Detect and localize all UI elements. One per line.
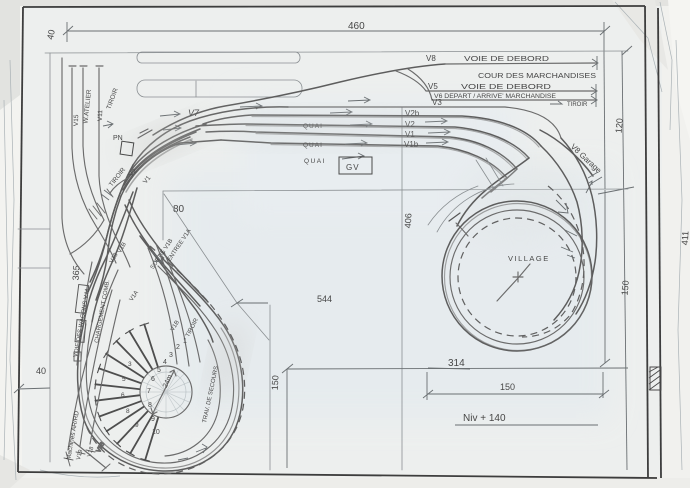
svg-text:150: 150: [500, 382, 515, 392]
svg-text:V6 DEPART / ARRIVE’ MARCHANDIS: V6 DEPART / ARRIVE’ MARCHANDISE: [434, 93, 556, 100]
svg-text:9: 9: [151, 416, 155, 423]
svg-text:GV: GV: [346, 163, 360, 172]
svg-text:VOIE DE DEBORD: VOIE DE DEBORD: [461, 82, 552, 91]
svg-text:2: 2: [176, 344, 180, 351]
svg-text:3: 3: [169, 352, 173, 359]
svg-text:1: 1: [183, 338, 187, 345]
svg-text:5: 5: [122, 376, 126, 383]
svg-text:120: 120: [614, 118, 625, 134]
svg-text:411: 411: [680, 231, 690, 246]
svg-text:V8: V8: [426, 54, 436, 63]
svg-text:8: 8: [126, 408, 130, 415]
svg-text:V11: V11: [97, 110, 104, 122]
svg-text:VOIE DE DEBORD: VOIE DE DEBORD: [464, 54, 550, 63]
svg-text:COUR DES MARCHANDISES: COUR DES MARCHANDISES: [478, 71, 596, 80]
svg-text:314: 314: [448, 358, 465, 369]
svg-text:PN: PN: [113, 135, 123, 142]
svg-text:7: 7: [147, 388, 151, 395]
svg-text:V7: V7: [188, 108, 200, 118]
svg-text:QUAI: QUAI: [304, 158, 326, 165]
svg-text:10: 10: [152, 429, 160, 436]
svg-text:Niv + 140: Niv + 140: [463, 413, 506, 424]
svg-text:V5: V5: [428, 82, 438, 91]
svg-text:V15: V15: [73, 114, 80, 126]
svg-text:3: 3: [128, 361, 132, 368]
svg-text:5: 5: [157, 367, 161, 374]
svg-text:V3: V3: [432, 98, 442, 107]
svg-text:365: 365: [71, 265, 82, 281]
svg-text:40: 40: [45, 29, 57, 41]
svg-text:8: 8: [148, 402, 152, 409]
svg-text:6: 6: [121, 392, 125, 399]
svg-text:40: 40: [36, 366, 46, 376]
svg-text:150: 150: [620, 280, 631, 296]
svg-text:TIROIR: TIROIR: [567, 102, 588, 108]
svg-text:9: 9: [135, 422, 139, 429]
svg-text:6: 6: [151, 376, 155, 383]
svg-text:460: 460: [348, 21, 365, 32]
svg-text:406: 406: [403, 213, 414, 229]
svg-text:544: 544: [317, 294, 332, 304]
svg-text:4: 4: [163, 359, 167, 366]
svg-text:VILLAGE: VILLAGE: [508, 254, 550, 263]
svg-text:150: 150: [270, 375, 281, 391]
